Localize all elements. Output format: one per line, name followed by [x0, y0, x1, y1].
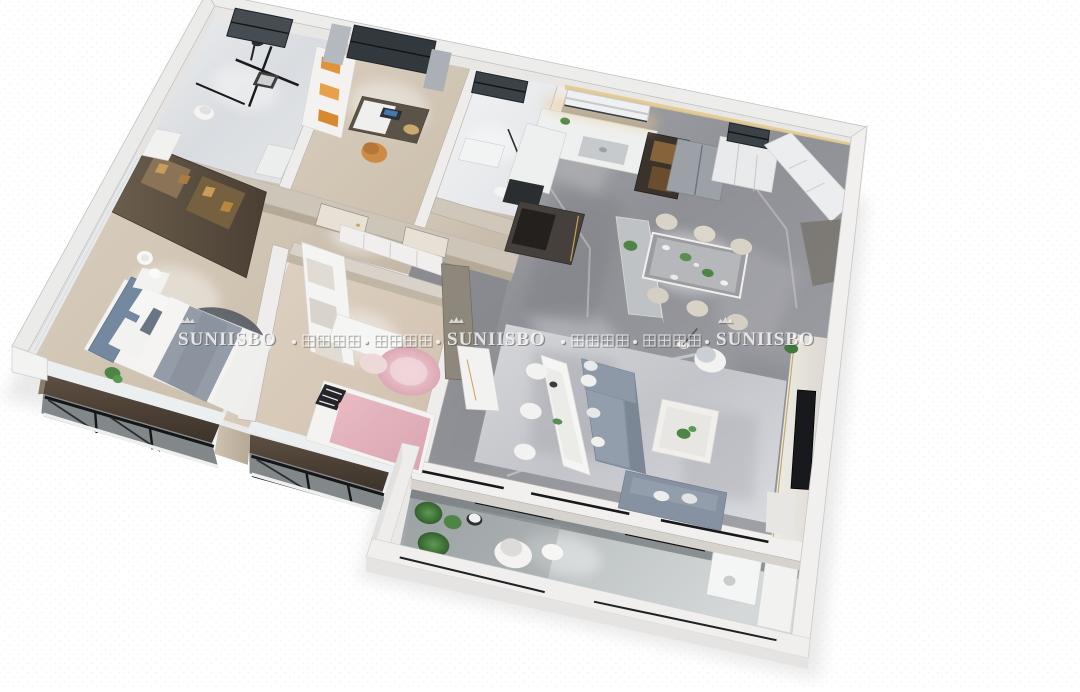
- svg-text:SUNIISBO: SUNIISBO: [178, 329, 277, 350]
- svg-text:SUNIISBO: SUNIISBO: [716, 329, 815, 350]
- svg-text:SUNIISBO: SUNIISBO: [447, 329, 546, 350]
